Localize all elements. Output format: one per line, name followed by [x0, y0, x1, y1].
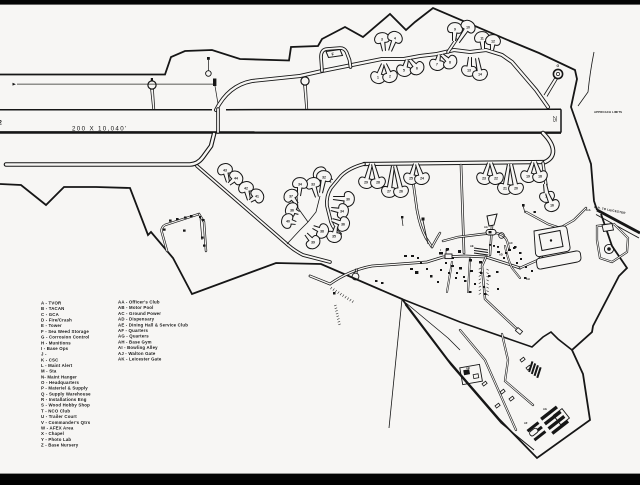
svg-text:14: 14 [478, 72, 482, 76]
svg-text:M - Sta: M - Sta [41, 369, 57, 374]
svg-text:K - CSC: K - CSC [41, 357, 59, 362]
svg-text:D - Fire/Crash: D - Fire/Crash [41, 318, 72, 323]
svg-text:38: 38 [320, 229, 324, 233]
svg-text:AJ - Walton Gate: AJ - Walton Gate [118, 351, 156, 356]
svg-text:16: 16 [550, 203, 554, 207]
svg-text:23: 23 [482, 176, 486, 180]
svg-text:J -: J - [41, 352, 47, 357]
svg-text:19: 19 [526, 174, 530, 178]
svg-text:5: 5 [403, 68, 405, 72]
svg-text:H - Munitions: H - Munitions [41, 340, 71, 345]
svg-text:Y - Photo Lab: Y - Photo Lab [41, 437, 71, 442]
svg-text:35: 35 [332, 234, 336, 238]
svg-text:Z - Base Nursery: Z - Base Nursery [41, 443, 79, 448]
svg-text:AK - Leicester Gate: AK - Leicester Gate [118, 357, 162, 362]
svg-text:O - Headquarters: O - Headquarters [41, 380, 80, 385]
svg-text:E - Tower: E - Tower [41, 323, 62, 328]
svg-text:U - Trailer Court: U - Trailer Court [41, 414, 77, 419]
svg-text:37: 37 [289, 194, 293, 198]
svg-text:8: 8 [449, 60, 451, 64]
svg-text:11: 11 [480, 36, 484, 40]
svg-text:AH - Base Gym: AH - Base Gym [118, 339, 152, 344]
svg-text:F - Sea Weed Storage: F - Sea Weed Storage [41, 329, 89, 334]
svg-text:AG: AG [543, 407, 547, 411]
svg-text:34: 34 [340, 209, 344, 213]
svg-text:10: 10 [466, 25, 470, 29]
svg-text:33: 33 [311, 182, 315, 186]
svg-text:G: G [557, 64, 560, 68]
svg-text:AB - Motor Pool: AB - Motor Pool [118, 305, 154, 310]
svg-text:C - GCA: C - GCA [41, 312, 60, 317]
svg-text:12: 12 [491, 39, 495, 43]
svg-text:L - Maint Alert: L - Maint Alert [41, 363, 73, 368]
svg-text:36: 36 [290, 208, 294, 212]
svg-text:25: 25 [409, 176, 413, 180]
svg-text:N- Maint Hanger: N- Maint Hanger [41, 374, 77, 379]
svg-text:T - NCO Club: T - NCO Club [41, 408, 70, 413]
svg-text:28: 28 [376, 180, 380, 184]
svg-text:AC: AC [509, 241, 513, 245]
svg-text:34: 34 [298, 182, 302, 186]
svg-text:22: 22 [494, 176, 498, 180]
svg-text:27: 27 [387, 189, 391, 193]
svg-text:AG - Quarters: AG - Quarters [118, 334, 149, 339]
svg-text:21: 21 [503, 186, 507, 190]
svg-text:R - Installations Eng: R - Installations Eng [41, 397, 87, 402]
svg-text:30: 30 [346, 197, 350, 201]
svg-text:APPROACH LIMITS: APPROACH LIMITS [594, 110, 622, 114]
svg-text:36: 36 [341, 222, 345, 226]
svg-text:32: 32 [322, 175, 326, 179]
svg-text:W - AFEX Area: W - AFEX Area [41, 426, 74, 431]
svg-text:AD: AD [499, 253, 503, 257]
svg-text:42: 42 [244, 186, 248, 190]
svg-text:6: 6 [416, 66, 418, 70]
svg-text:AE - Dining Hall & Service Clu: AE - Dining Hall & Service Club [118, 322, 188, 327]
svg-text:24: 24 [420, 176, 424, 180]
svg-text:AA - Officer's Club: AA - Officer's Club [118, 300, 160, 305]
svg-text:40: 40 [286, 219, 290, 223]
svg-text:43: 43 [223, 168, 227, 172]
svg-text:AA: AA [484, 225, 488, 229]
svg-text:A - TVOR: A - TVOR [41, 301, 62, 306]
svg-text:3: 3 [381, 37, 383, 41]
svg-text:Q - Supply Warehouse: Q - Supply Warehouse [41, 391, 91, 396]
svg-text:20: 20 [514, 186, 518, 190]
svg-text:39: 39 [311, 240, 315, 244]
svg-text:29: 29 [364, 180, 368, 184]
svg-text:26: 26 [399, 189, 403, 193]
svg-text:AD - Dispensary: AD - Dispensary [118, 317, 155, 322]
svg-text:AF - Quarters: AF - Quarters [118, 328, 149, 333]
svg-text:9: 9 [454, 27, 456, 31]
svg-text:1: 1 [377, 75, 379, 79]
svg-text:A.K.: A.K. [586, 208, 591, 212]
svg-text:X - Chapel: X - Chapel [41, 431, 64, 436]
svg-text:P - Materiel & Supply: P - Materiel & Supply [41, 386, 88, 391]
svg-text:AE: AE [470, 244, 474, 248]
svg-text:AH: AH [526, 277, 530, 281]
svg-text:18: 18 [538, 174, 542, 178]
svg-text:AI - Bowling Alley: AI - Bowling Alley [118, 345, 158, 350]
svg-text:G - Corrosion Control: G - Corrosion Control [41, 335, 89, 340]
svg-text:S - Wood Hobby Shop: S - Wood Hobby Shop [41, 403, 90, 408]
svg-text:25: 25 [551, 116, 557, 122]
svg-text:V - Commander's Qtrs: V - Commander's Qtrs [41, 420, 91, 425]
svg-text:B - TACAN: B - TACAN [41, 306, 65, 311]
svg-text:200 X 10,040’: 200 X 10,040’ [72, 126, 128, 133]
svg-text:13: 13 [467, 68, 471, 72]
svg-text:41: 41 [255, 194, 259, 198]
svg-text:AC - Ground Power: AC - Ground Power [118, 311, 161, 316]
svg-text:7: 7 [436, 62, 438, 66]
svg-text:AB: AB [466, 366, 470, 370]
svg-text:2: 2 [389, 74, 391, 78]
svg-text:44: 44 [234, 176, 238, 180]
svg-text:AF: AF [524, 421, 528, 425]
svg-text:I - Base Ops: I - Base Ops [41, 346, 69, 351]
svg-text:4: 4 [394, 36, 396, 40]
